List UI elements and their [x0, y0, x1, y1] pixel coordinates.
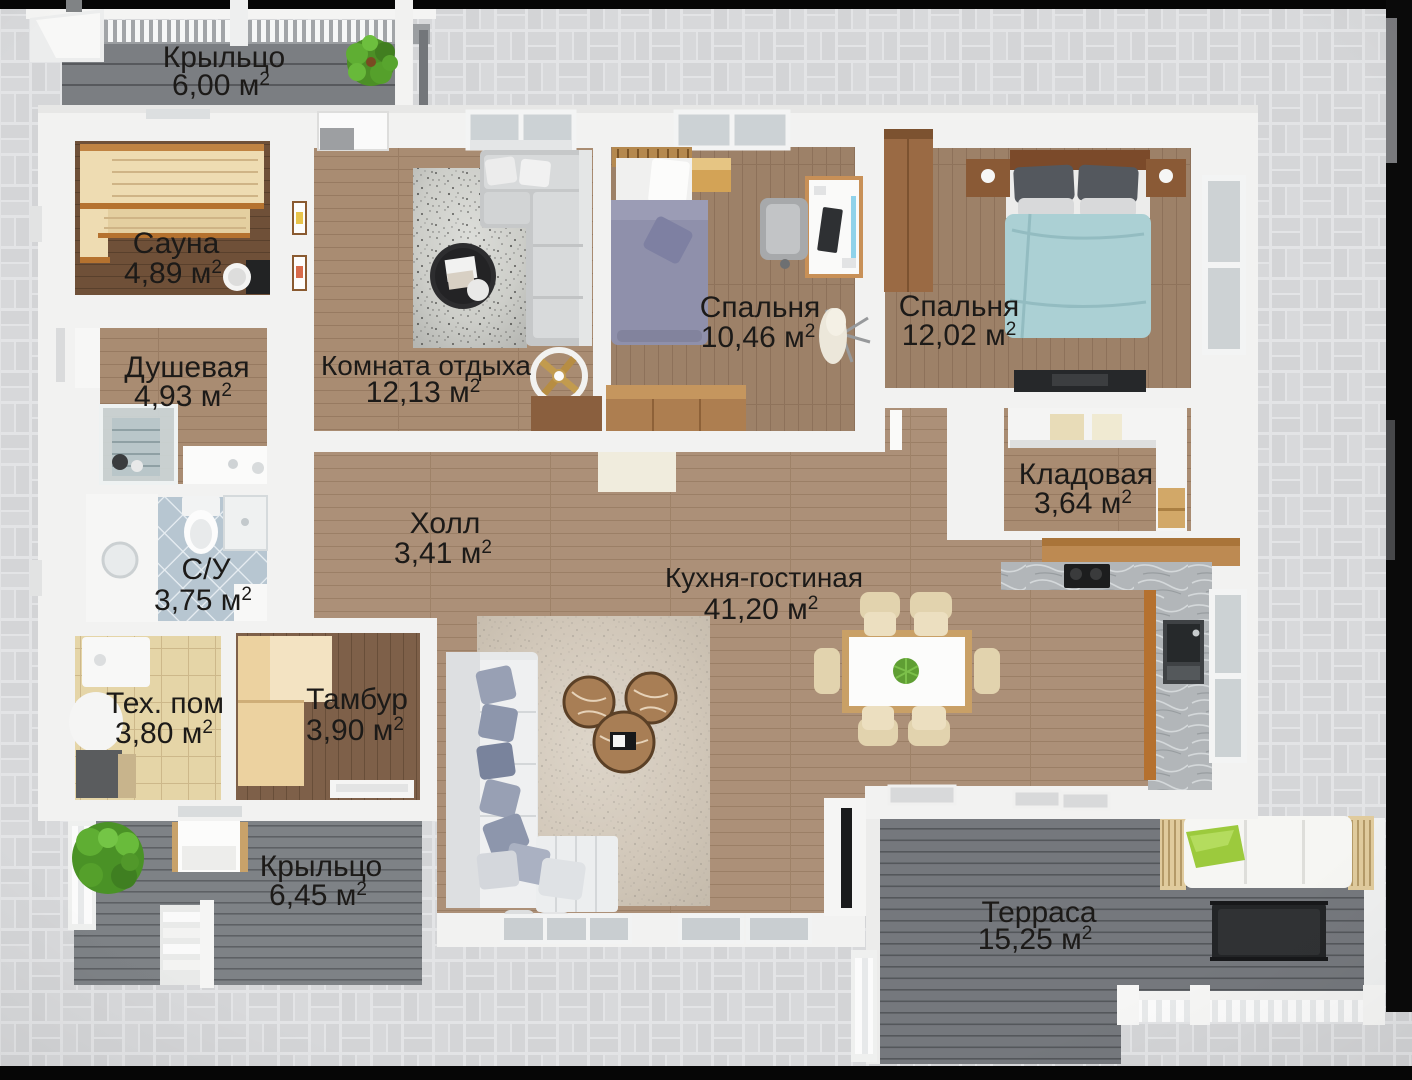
svg-text:12,13 м2: 12,13 м2 — [366, 376, 481, 409]
svg-text:Кухня-гостиная: Кухня-гостиная — [665, 562, 863, 593]
svg-text:41,20 м2: 41,20 м2 — [704, 593, 819, 626]
svg-text:Тамбур: Тамбур — [306, 683, 408, 716]
svg-text:6,00 м2: 6,00 м2 — [172, 69, 270, 102]
svg-text:3,64 м2: 3,64 м2 — [1034, 487, 1132, 520]
svg-text:4,89 м2: 4,89 м2 — [124, 257, 222, 290]
svg-text:3,41 м2: 3,41 м2 — [394, 537, 492, 570]
svg-text:6,45 м2: 6,45 м2 — [269, 879, 367, 912]
svg-text:Сауна: Сауна — [133, 227, 220, 260]
svg-text:Холл: Холл — [410, 507, 481, 540]
svg-text:15,25 м2: 15,25 м2 — [978, 923, 1093, 956]
svg-text:3,90 м2: 3,90 м2 — [306, 714, 404, 747]
svg-text:12,02 м2: 12,02 м2 — [902, 319, 1017, 352]
svg-text:4,93 м2: 4,93 м2 — [134, 380, 232, 413]
svg-text:10,46 м2: 10,46 м2 — [701, 321, 816, 354]
svg-text:С/У: С/У — [181, 553, 231, 586]
svg-text:Тех. пом: Тех. пом — [106, 687, 224, 720]
svg-text:Спальня: Спальня — [700, 291, 821, 324]
svg-text:3,75 м2: 3,75 м2 — [154, 584, 252, 617]
svg-text:3,80 м2: 3,80 м2 — [115, 717, 213, 750]
